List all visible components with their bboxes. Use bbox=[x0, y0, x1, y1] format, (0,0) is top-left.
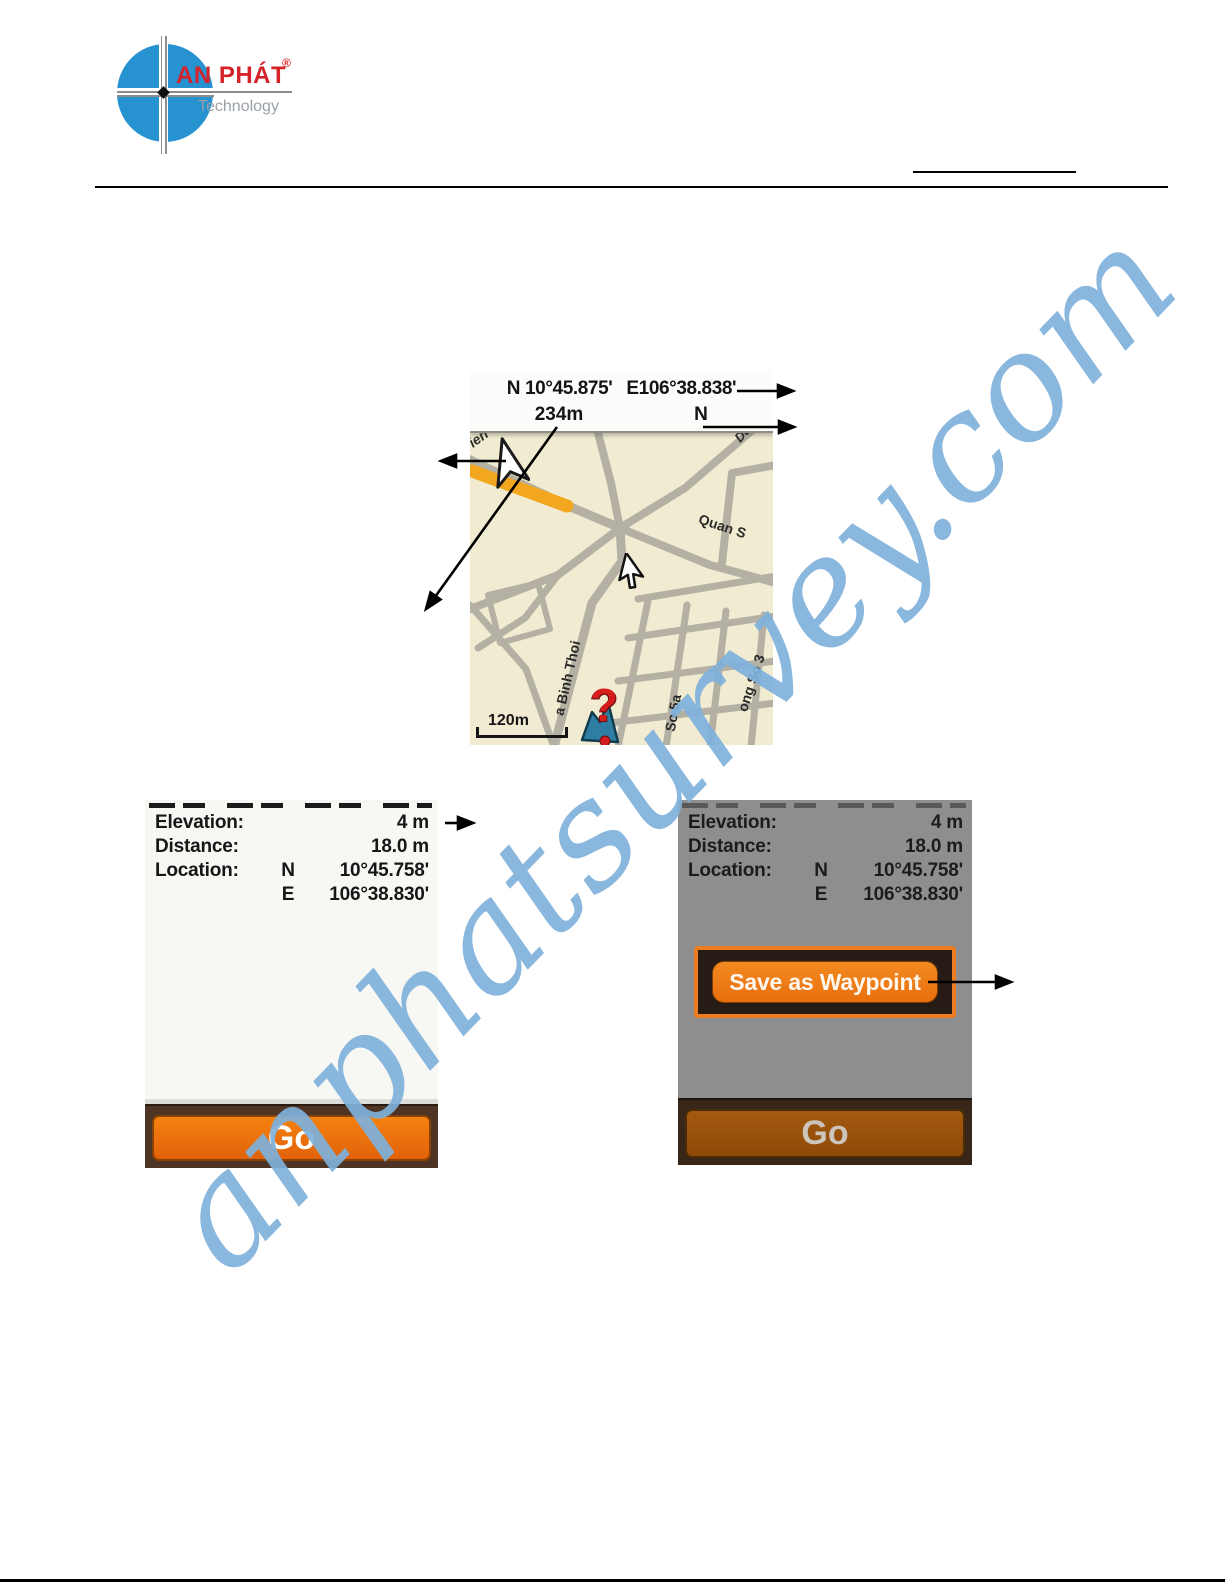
manual-page: AN PHÁT ® Technology N 10°45.875' E106°3… bbox=[0, 0, 1225, 1585]
elevation-row: Elevation: 4 m bbox=[155, 812, 429, 836]
distance-label: Distance: bbox=[155, 836, 239, 858]
logo-brand-text: AN PHÁT bbox=[176, 62, 286, 90]
location-lon-value: 106°38.830' bbox=[329, 884, 429, 906]
distance-label: Distance: bbox=[688, 836, 772, 858]
map-scale-value: 120m bbox=[488, 712, 529, 730]
logo-underline bbox=[117, 91, 292, 93]
map-pointer-cursor-icon[interactable] bbox=[618, 553, 652, 591]
go-button-dimmed[interactable]: Go bbox=[685, 1109, 965, 1158]
waypoint-detail-panel-dimmed: Elevation: 4 m Distance: 18.0 m Location… bbox=[678, 800, 972, 1165]
gps-map-screenshot[interactable]: N 10°45.875' E106°38.838' 234m N bbox=[470, 370, 773, 745]
header-rule bbox=[95, 186, 1168, 188]
save-waypoint-focus-frame: Save as Waypoint bbox=[694, 946, 956, 1018]
longitude-value: E106°38.838' bbox=[626, 378, 736, 400]
location-lat-value: 10°45.758' bbox=[874, 860, 963, 882]
waypoint-detail-panel: Elevation: 4 m Distance: 18.0 m Location… bbox=[145, 800, 438, 1168]
location-dir-n: N bbox=[273, 860, 303, 882]
location-label: Location: bbox=[688, 860, 772, 882]
location-row-n: Location: N 10°45.758' bbox=[688, 860, 963, 884]
location-lat-value: 10°45.758' bbox=[340, 860, 429, 882]
location-row-n: Location: N 10°45.758' bbox=[155, 860, 429, 884]
location-lon-value: 106°38.830' bbox=[863, 884, 963, 906]
map-scale-bar bbox=[476, 735, 568, 738]
distance-row: Distance: 18.0 m bbox=[688, 836, 963, 860]
distance-value: 18.0 m bbox=[371, 836, 429, 858]
callout-arrows bbox=[0, 0, 1225, 1585]
go-button-bar: Go bbox=[145, 1104, 438, 1168]
distance-row: Distance: 18.0 m bbox=[155, 836, 429, 860]
location-dir-e: E bbox=[806, 884, 836, 906]
location-label: Location: bbox=[155, 860, 239, 882]
logo-tagline: Technology bbox=[198, 98, 279, 116]
elevation-label: Elevation: bbox=[155, 812, 244, 834]
map-status-bar: N 10°45.875' E106°38.838' 234m N bbox=[470, 370, 773, 433]
gps-position-arrow-icon bbox=[486, 436, 530, 490]
location-dir-e: E bbox=[273, 884, 303, 906]
elevation-row: Elevation: 4 m bbox=[688, 812, 963, 836]
location-row-e: E 106°38.830' bbox=[688, 884, 963, 908]
elevation-label: Elevation: bbox=[688, 812, 777, 834]
waypoint-question-marker: ? bbox=[580, 688, 632, 745]
map-orientation-value: N bbox=[688, 404, 714, 426]
registered-mark: ® bbox=[282, 56, 291, 70]
anphat-logo: AN PHÁT ® Technology bbox=[110, 36, 320, 161]
location-dir-n: N bbox=[806, 860, 836, 882]
elevation-value: 4 m bbox=[397, 812, 429, 834]
cropped-text-remnant bbox=[682, 803, 966, 808]
map-elevation-value: 234m bbox=[526, 404, 592, 426]
latitude-value: N 10°45.875' bbox=[507, 378, 613, 400]
go-button-bar: Go bbox=[678, 1098, 972, 1165]
cropped-text-remnant bbox=[149, 803, 432, 808]
header-short-rule bbox=[913, 171, 1076, 173]
question-mark-glyph: ? bbox=[590, 678, 618, 732]
distance-value: 18.0 m bbox=[905, 836, 963, 858]
elevation-value: 4 m bbox=[931, 812, 963, 834]
map-coordinates: N 10°45.875' E106°38.838' bbox=[470, 370, 773, 400]
go-button[interactable]: Go bbox=[152, 1115, 431, 1161]
save-as-waypoint-button[interactable]: Save as Waypoint bbox=[712, 961, 938, 1003]
location-row-e: E 106°38.830' bbox=[155, 884, 429, 908]
footer-rule bbox=[0, 1579, 1225, 1582]
